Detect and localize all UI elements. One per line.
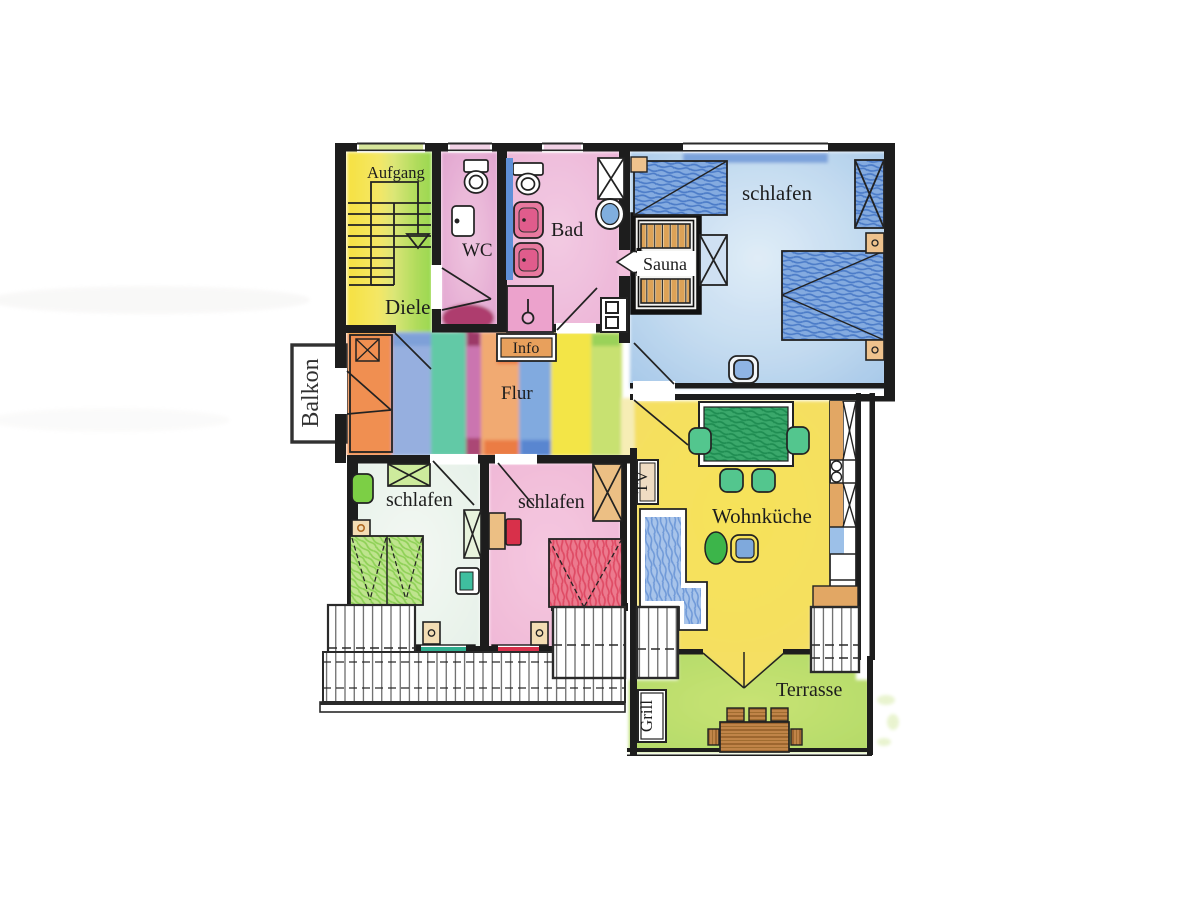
svg-text:schlafen: schlafen	[518, 491, 585, 513]
svg-text:Grill: Grill	[637, 700, 656, 732]
svg-text:Aufgang: Aufgang	[367, 163, 425, 182]
svg-text:Sauna: Sauna	[643, 254, 687, 274]
svg-text:schlafen: schlafen	[742, 181, 812, 205]
svg-text:WC: WC	[462, 240, 493, 261]
svg-text:Terrasse: Terrasse	[776, 679, 842, 701]
svg-text:Flur: Flur	[501, 383, 533, 404]
svg-text:Info: Info	[513, 340, 540, 357]
svg-text:schlafen: schlafen	[386, 489, 453, 511]
svg-text:TV: TV	[632, 470, 651, 493]
svg-text:Diele: Diele	[385, 295, 430, 319]
svg-text:Bad: Bad	[551, 219, 583, 241]
svg-text:Wohnküche: Wohnküche	[712, 504, 812, 528]
